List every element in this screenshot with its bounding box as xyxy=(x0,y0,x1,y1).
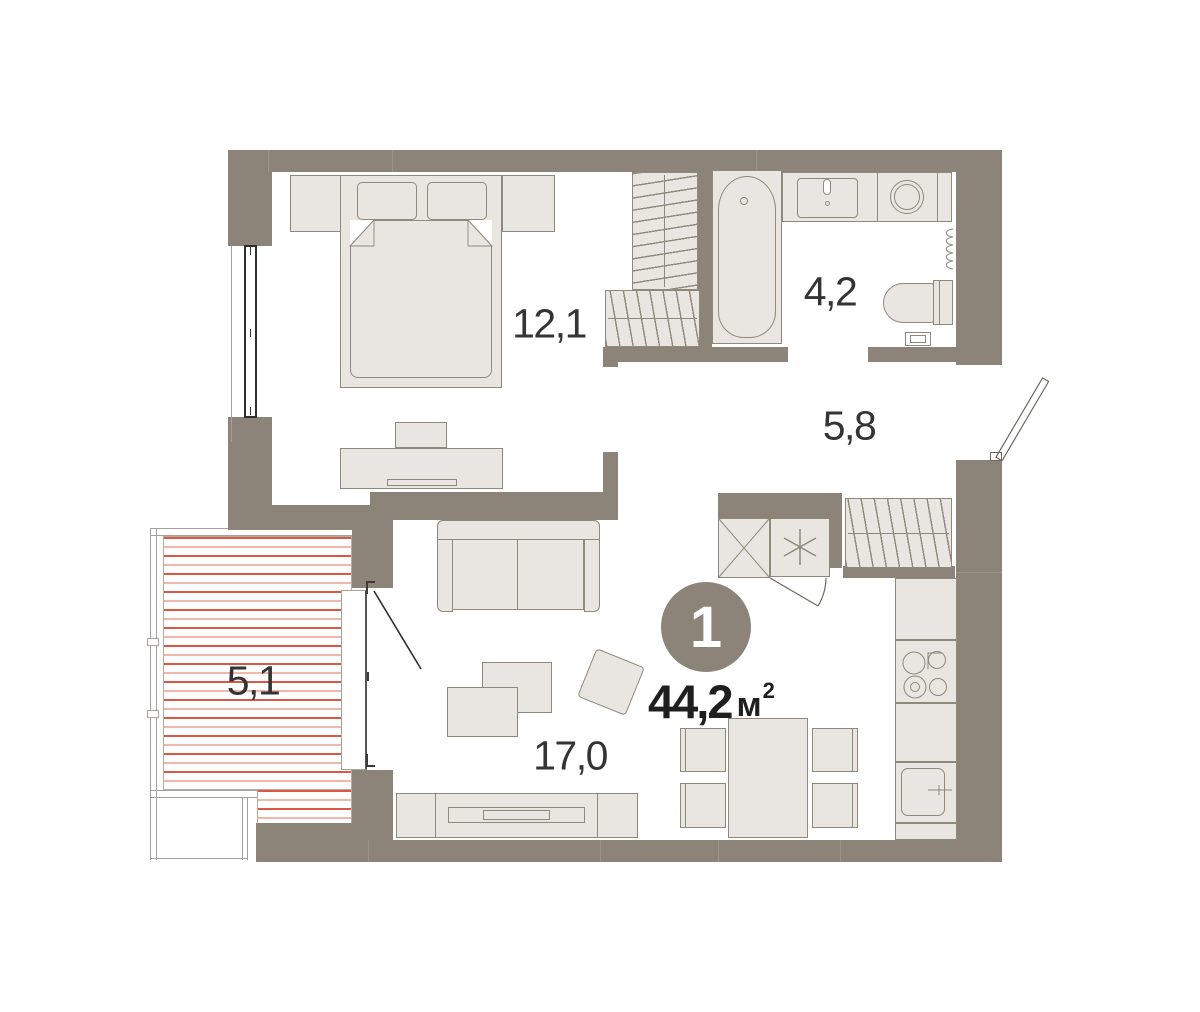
sink-faucet xyxy=(823,179,831,195)
wall-seam xyxy=(756,150,757,172)
toilet-bowl xyxy=(883,283,935,323)
balcony-glazing-line xyxy=(150,858,248,859)
total-area: 44,2 м 2 xyxy=(648,678,775,725)
wall-seam xyxy=(368,840,369,862)
room-area-label-bedroom: 12,1 xyxy=(512,301,586,348)
toilet-tank xyxy=(933,280,953,325)
ventilation-shaft xyxy=(718,518,770,578)
ottoman xyxy=(577,648,645,716)
balcony-mullion-tick xyxy=(147,638,159,646)
bedroom-tv xyxy=(395,422,447,448)
balcony-glazing-line xyxy=(242,797,243,860)
wall-top xyxy=(228,150,1002,172)
balcony-glazing-line xyxy=(150,528,151,860)
balcony-glazing-line xyxy=(150,790,257,791)
stove xyxy=(895,640,957,703)
wall-seam xyxy=(956,572,1002,573)
floor-plan: 12,1 4,2 5,8 5,1 17,0 1 44,2 м 2 xyxy=(0,0,1200,1012)
nightstand xyxy=(502,175,555,232)
total-area-unit: м xyxy=(736,688,761,722)
total-area-value: 44,2 xyxy=(648,678,731,725)
pillow xyxy=(357,182,417,220)
wall-kitchen-niche-top xyxy=(718,493,842,518)
wall-seam xyxy=(718,840,719,862)
nightstand xyxy=(290,175,343,232)
window-tick xyxy=(250,407,251,415)
balcony-door-mark xyxy=(366,582,368,594)
kitchen-cabinet xyxy=(895,823,957,840)
blanket xyxy=(350,220,492,378)
balcony-glazing-line xyxy=(156,528,157,860)
room-area-label-bathroom: 4,2 xyxy=(804,269,857,316)
dresser-handle xyxy=(387,479,457,486)
tv-stand-divider xyxy=(597,794,598,837)
dining-table xyxy=(728,718,808,838)
bathtub-drain xyxy=(740,197,748,205)
wall-bathroom-bottom-stub xyxy=(603,347,618,367)
tv-stand-divider xyxy=(435,794,436,837)
balcony-mullion-tick xyxy=(147,710,159,718)
counter-divider xyxy=(937,172,938,222)
chair xyxy=(680,783,726,828)
wall-fridge-stub xyxy=(830,518,842,568)
room-count-number: 1 xyxy=(690,594,722,661)
closet-rail xyxy=(848,533,949,534)
balcony-door-leaf xyxy=(374,591,421,669)
window-tick xyxy=(250,247,251,255)
wardrobe-rail xyxy=(664,175,665,287)
sofa-back xyxy=(437,520,600,540)
chair xyxy=(680,728,726,772)
balcony-door xyxy=(341,590,367,770)
chair-backrest-line xyxy=(852,784,853,827)
chair-backrest-line xyxy=(685,729,686,771)
balcony-glazing-line xyxy=(247,797,248,860)
wall-left-upper xyxy=(228,150,272,246)
wall-seam xyxy=(392,150,393,172)
toilet-accessory-inner xyxy=(910,335,926,343)
wall-bedroom-living-divider xyxy=(370,492,618,520)
kitchen-sink-basin xyxy=(901,768,945,816)
entry-door-leaf xyxy=(996,378,1049,461)
towel-radiator xyxy=(946,229,953,269)
coffee-table xyxy=(447,687,518,737)
washing-machine-drum-inner xyxy=(894,184,920,210)
wall-right-upper xyxy=(956,150,1002,365)
wall-wardrobe-bath-divider xyxy=(698,150,712,362)
kitchen-cabinet xyxy=(895,578,957,640)
chair-backrest-line xyxy=(685,784,686,827)
entry-door-hinge xyxy=(990,452,1002,461)
sofa-seat-cushion xyxy=(452,539,518,610)
interior-door-arc xyxy=(770,578,826,606)
wall-balcony-door-upper-stub xyxy=(352,520,393,588)
wall-bathroom-bottom-left xyxy=(603,347,788,362)
balcony-door-mark xyxy=(367,672,369,681)
wardrobe xyxy=(632,172,698,290)
window-tick xyxy=(250,329,251,337)
toilet-tank-line xyxy=(939,281,940,324)
balcony-door-mark xyxy=(366,765,375,767)
wall-right-lower xyxy=(956,460,1002,862)
wall-under-balcony xyxy=(256,823,368,840)
kitchen-cabinet xyxy=(895,703,957,762)
total-area-superscript: 2 xyxy=(763,680,775,702)
wall-seam xyxy=(600,840,601,862)
balcony-floor-hatch xyxy=(257,790,352,823)
room-area-label-living-kitchen: 17,0 xyxy=(533,733,607,780)
tv-inner xyxy=(483,810,550,820)
wall-seam xyxy=(840,840,841,862)
room-area-label-balcony: 5,1 xyxy=(227,658,280,705)
wall-seam xyxy=(268,150,269,172)
pillow xyxy=(427,182,487,220)
sink-drain xyxy=(825,201,830,206)
balcony-glazing-line xyxy=(150,797,257,798)
wall-hallway-stub xyxy=(603,452,618,520)
sofa-seat-cushion xyxy=(517,539,584,610)
room-area-label-hallway: 5,8 xyxy=(823,403,876,450)
refrigerator xyxy=(770,518,830,577)
counter-divider xyxy=(877,172,878,222)
chair-backrest-line xyxy=(852,729,853,771)
window-sill-line xyxy=(231,246,232,442)
room-count-badge: 1 xyxy=(661,582,751,672)
wardrobe-rail xyxy=(608,318,697,319)
